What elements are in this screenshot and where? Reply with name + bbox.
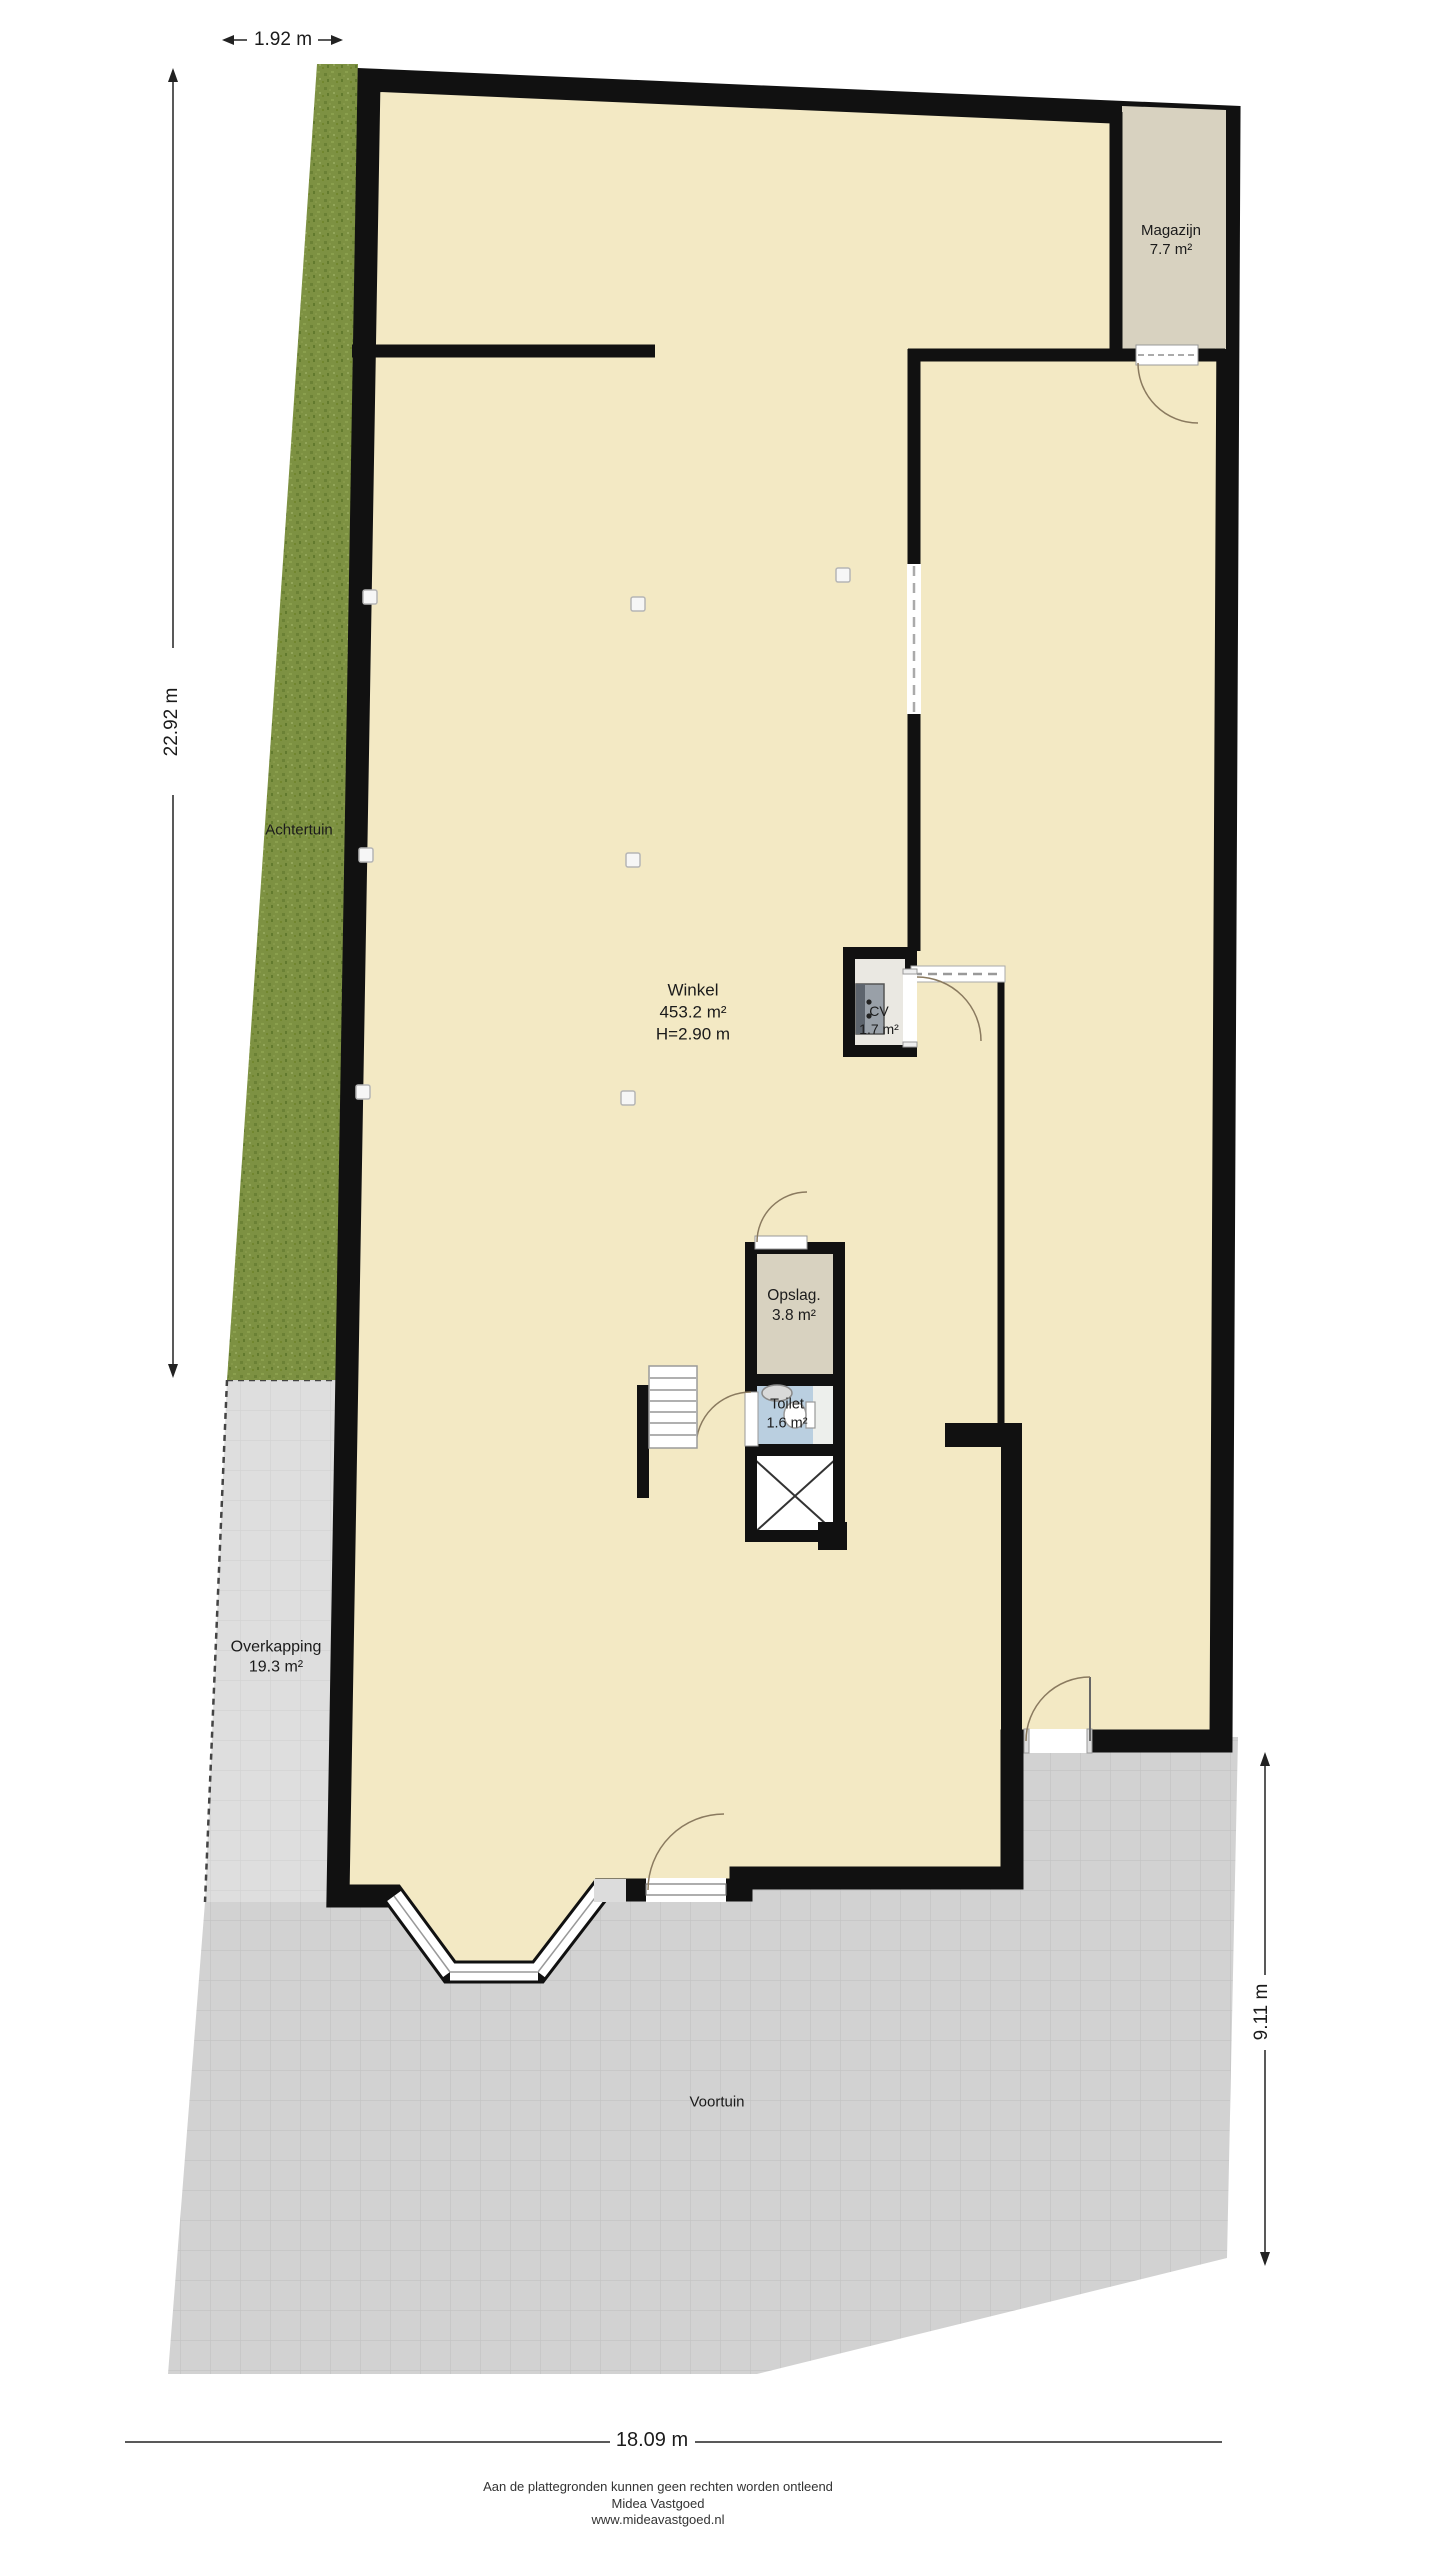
overkapping-label: Overkapping 19.3 m² bbox=[231, 1638, 322, 1679]
building-outline bbox=[338, 80, 1229, 1972]
opslag-area: 3.8 m² bbox=[767, 1306, 820, 1326]
footer-website: www.mideavastgoed.nl bbox=[483, 2512, 833, 2529]
toilet-label: Toilet 1.6 m² bbox=[766, 1395, 807, 1432]
cv-area: 1.7 m² bbox=[859, 1021, 899, 1039]
overkapping-area: 19.3 m² bbox=[231, 1658, 322, 1678]
overkapping-name: Overkapping bbox=[231, 1638, 322, 1658]
dimension-left-label: 22.92 m bbox=[160, 688, 184, 757]
voortuin-label: Voortuin bbox=[689, 2092, 744, 2111]
corridor-window bbox=[907, 564, 921, 714]
winkel-area: 453.2 m² bbox=[656, 1001, 730, 1023]
stairs bbox=[649, 1366, 697, 1448]
dimension-top-label: 1.92 m bbox=[254, 28, 312, 52]
winkel-height: H=2.90 m bbox=[656, 1023, 730, 1045]
opslag-label: Opslag. 3.8 m² bbox=[767, 1286, 820, 1326]
toilet-name: Toilet bbox=[766, 1395, 807, 1414]
floorplan-drawing bbox=[0, 0, 1440, 2560]
dimension-bottom-label: 18.09 m bbox=[616, 2428, 688, 2454]
footer-disclaimer: Aan de plattegronden kunnen geen rechten… bbox=[483, 2479, 833, 2496]
magazijn-name: Magazijn bbox=[1141, 221, 1201, 240]
magazijn-area: 7.7 m² bbox=[1141, 240, 1201, 259]
toilet-area: 1.6 m² bbox=[766, 1414, 807, 1433]
magazijn-label: Magazijn 7.7 m² bbox=[1141, 221, 1201, 259]
floorplan-page: 1.92 m 22.92 m 9.11 m 18.09 m Achtertuin… bbox=[0, 0, 1440, 2560]
footer-company: Midea Vastgoed bbox=[483, 2496, 833, 2513]
cv-name: CV bbox=[859, 1003, 899, 1021]
achtertuin-grass bbox=[227, 64, 358, 1380]
footer-text: Aan de plattegronden kunnen geen rechten… bbox=[483, 2479, 833, 2529]
winkel-name: Winkel bbox=[656, 979, 730, 1001]
cv-label: CV 1.7 m² bbox=[859, 1003, 899, 1039]
dimension-right-label: 9.11 m bbox=[1250, 1984, 1274, 2041]
winkel-label: Winkel 453.2 m² H=2.90 m bbox=[656, 979, 730, 1044]
opslag-name: Opslag. bbox=[767, 1286, 820, 1306]
achtertuin-label: Achtertuin bbox=[265, 820, 333, 839]
